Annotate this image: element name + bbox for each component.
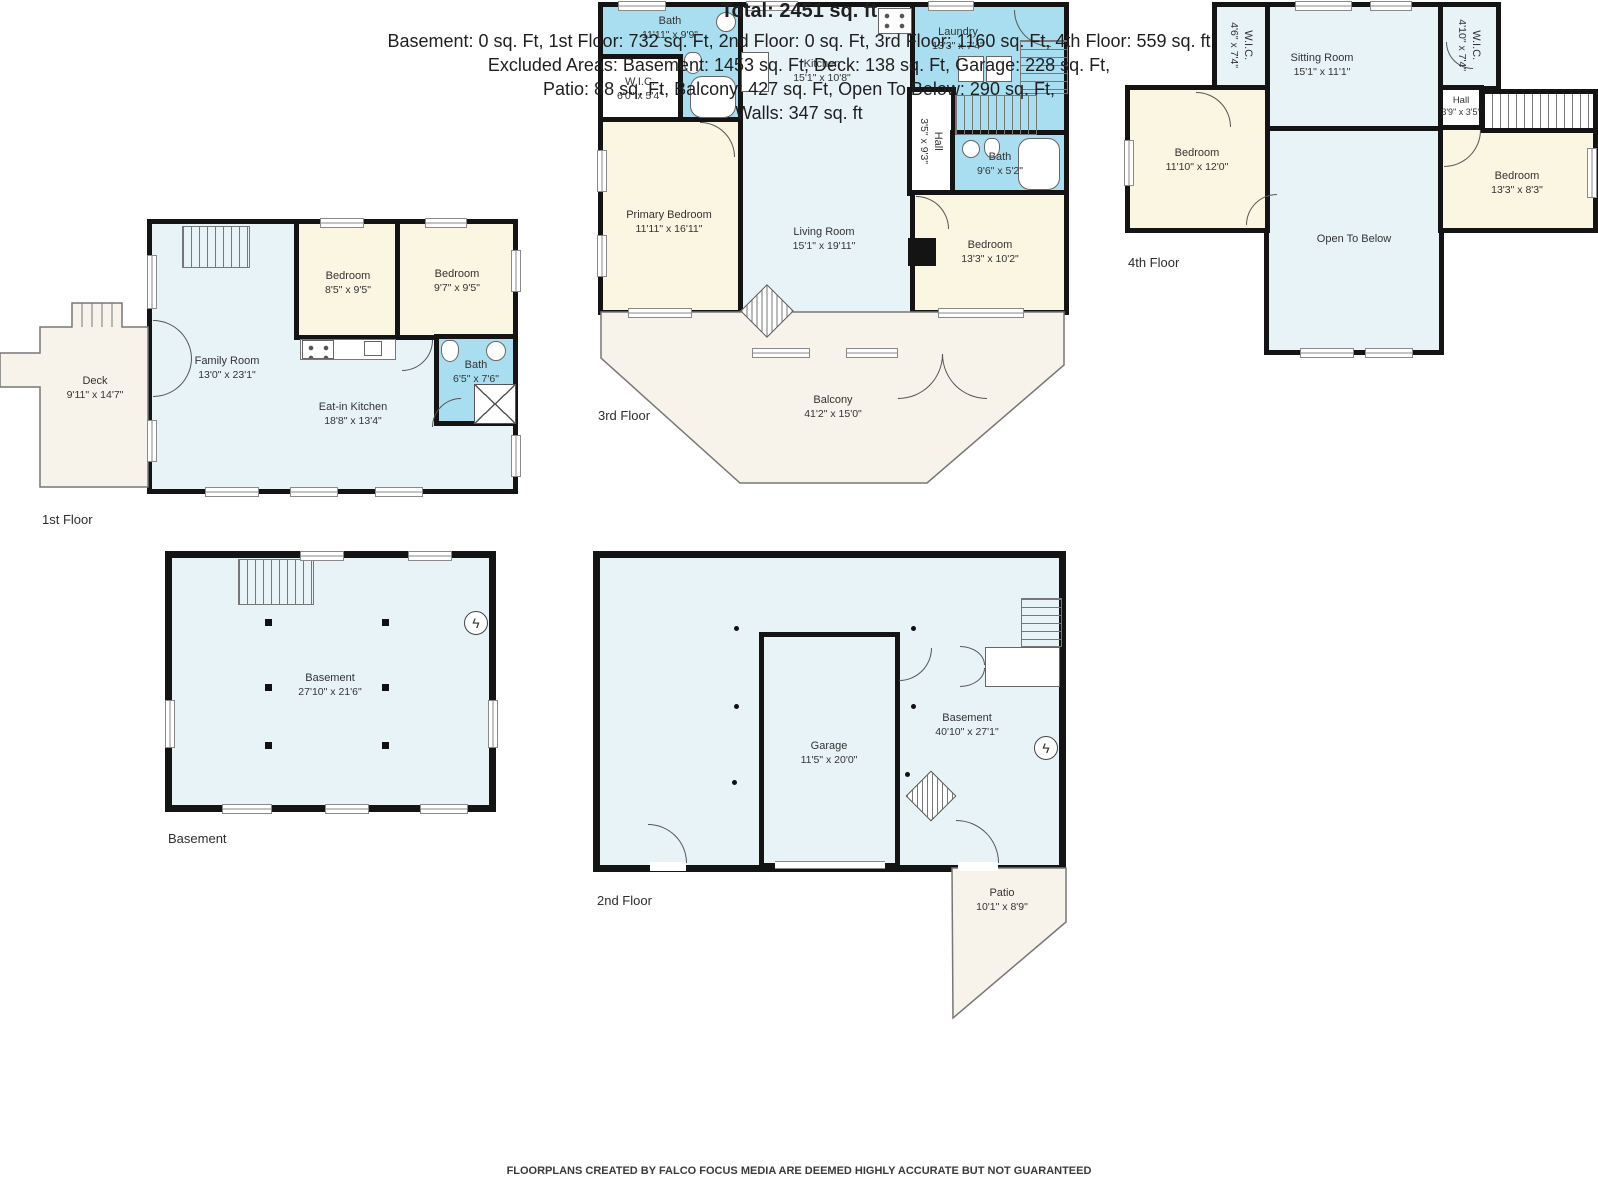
- window: [300, 551, 344, 561]
- window: [752, 348, 810, 358]
- column-dot: [905, 772, 910, 777]
- room-fourth-open-to-below: [1267, 128, 1441, 352]
- window: [320, 218, 364, 228]
- area-summary: Total: 2451 sq. ft Basement: 0 sq. Ft, 1…: [0, 0, 1598, 125]
- window: [290, 487, 338, 497]
- sink-icon: [962, 140, 980, 158]
- bathtub-icon: [1018, 138, 1060, 190]
- room-first-bedroom-a: [297, 222, 398, 337]
- floor-label-first: 1st Floor: [42, 512, 93, 527]
- window: [425, 218, 467, 228]
- support-pillar: [382, 742, 389, 749]
- window: [205, 487, 259, 497]
- floor-areas-line: Basement: 0 sq. Ft, 1st Floor: 732 sq. F…: [0, 29, 1598, 53]
- chimney-icon: [908, 238, 936, 266]
- window: [375, 487, 423, 497]
- garage-door: [775, 861, 885, 869]
- stove-icon: [302, 340, 334, 359]
- column-dot: [734, 704, 739, 709]
- window: [628, 308, 692, 318]
- sink-icon: [486, 341, 506, 361]
- walls-area-line: Walls: 347 sq. ft: [0, 101, 1598, 125]
- floor-label-basement: Basement: [168, 831, 227, 846]
- column-dot: [734, 626, 739, 631]
- excluded-areas-line2: Patio: 88 sq. Ft, Balcony: 427 sq. Ft, O…: [0, 77, 1598, 101]
- support-pillar: [265, 742, 272, 749]
- window: [1587, 148, 1597, 198]
- floorplan-sheet: Bath11'11" x 9'9" W.I.C.6'0" x 5'4" Kitc…: [0, 0, 1598, 1200]
- shower-icon: [474, 384, 516, 424]
- sink-icon: [364, 341, 382, 356]
- stairs-icon: [238, 559, 314, 605]
- window: [511, 435, 521, 477]
- balcony-shape: [595, 300, 1070, 490]
- window: [488, 700, 498, 748]
- closet-icon: [985, 647, 1060, 687]
- window: [511, 250, 521, 292]
- column-dot: [732, 780, 737, 785]
- toilet-icon: [441, 340, 459, 362]
- support-pillar: [382, 684, 389, 691]
- window: [165, 700, 175, 748]
- total-area: Total: 2451 sq. ft: [0, 0, 1598, 23]
- electrical-glyph: ϟ: [472, 616, 479, 630]
- electrical-panel-icon: ϟ: [464, 611, 488, 635]
- column-dot: [911, 626, 916, 631]
- toilet-icon: [984, 138, 1000, 158]
- floor-label-fourth: 4th Floor: [1128, 255, 1179, 270]
- window: [147, 255, 157, 309]
- room-basement: [169, 555, 492, 808]
- floor-label-third: 3rd Floor: [598, 408, 650, 423]
- window: [222, 804, 272, 814]
- wall-opening: [958, 862, 998, 871]
- wall-opening: [650, 862, 686, 871]
- window: [420, 804, 468, 814]
- window: [938, 308, 1024, 318]
- support-pillar: [265, 619, 272, 626]
- support-pillar: [382, 619, 389, 626]
- window: [846, 348, 898, 358]
- room-second-garage: [762, 635, 897, 865]
- window: [147, 420, 157, 462]
- column-dot: [911, 704, 916, 709]
- deck-shape: [0, 295, 155, 495]
- stairs-icon: [182, 226, 250, 268]
- window: [1124, 140, 1134, 186]
- window: [1365, 348, 1413, 358]
- electrical-panel-icon: ϟ: [1034, 736, 1058, 760]
- disclaimer: FLOORPLANS CREATED BY FALCO FOCUS MEDIA …: [0, 1165, 1598, 1177]
- stairs-icon: [1021, 598, 1062, 647]
- window: [597, 150, 607, 192]
- window: [597, 235, 607, 277]
- window: [408, 551, 452, 561]
- patio-shape: [945, 860, 1075, 1025]
- window: [325, 804, 369, 814]
- support-pillar: [265, 684, 272, 691]
- room-first-bedroom-b: [398, 222, 515, 337]
- excluded-areas-line: Excluded Areas: Basement: 1453 sq. Ft, D…: [0, 53, 1598, 77]
- window: [1300, 348, 1354, 358]
- electrical-glyph: ϟ: [1042, 741, 1049, 755]
- floor-label-second: 2nd Floor: [597, 893, 652, 908]
